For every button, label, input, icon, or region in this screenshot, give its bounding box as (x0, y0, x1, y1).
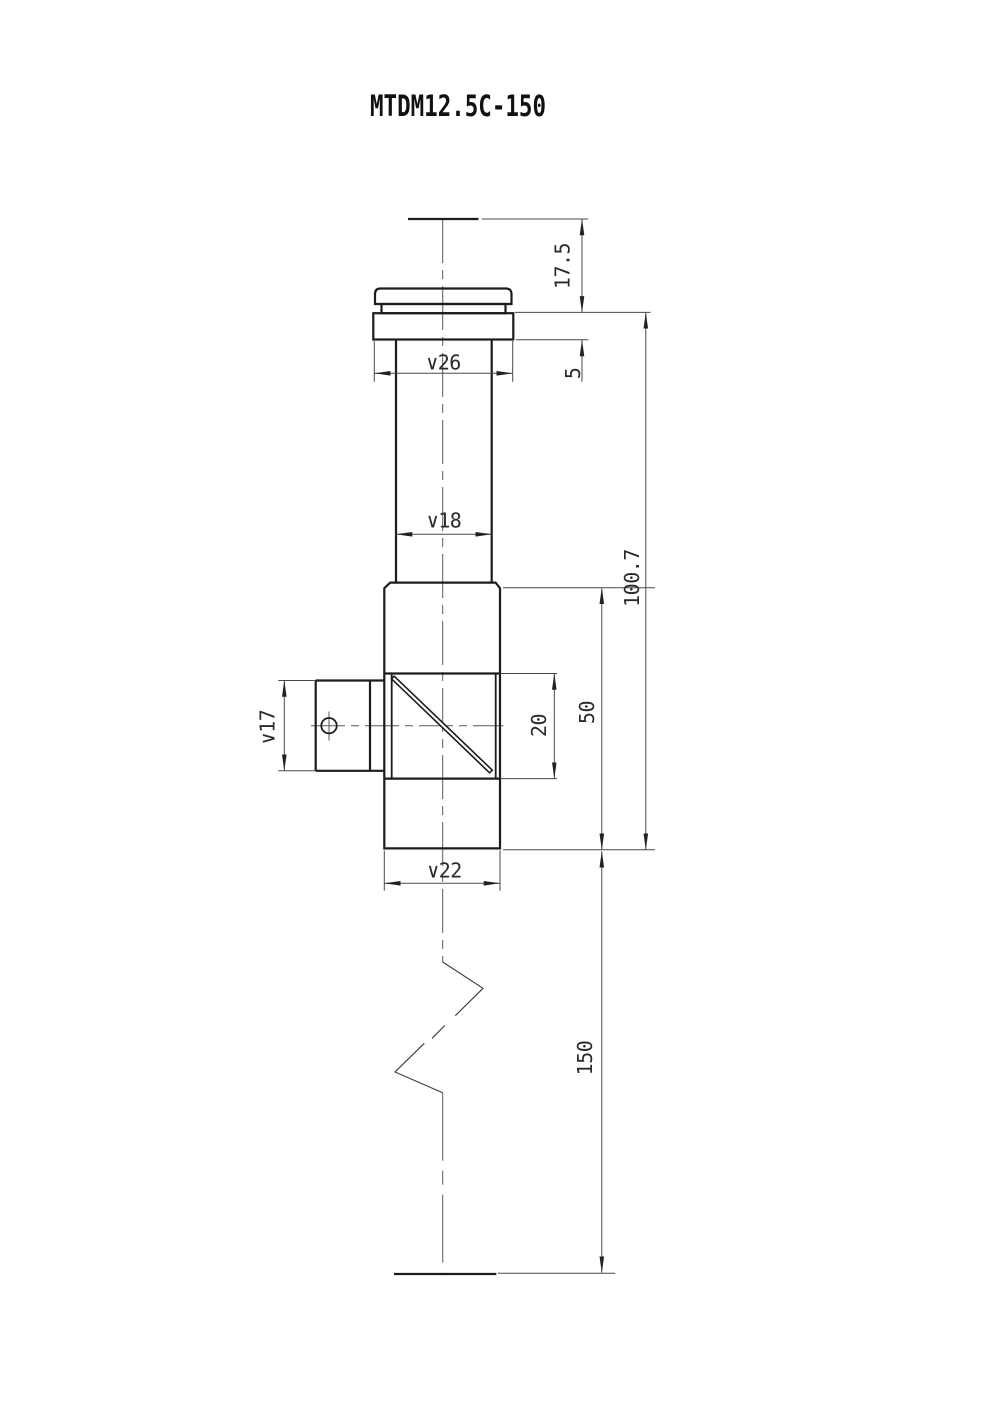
dim-label-port-dia: ∨17 (256, 710, 280, 745)
dim-label-flange-dia: ∨26 (426, 351, 461, 375)
technical-drawing: MTDM12.5C-150 ∨26 ∨18 ∨22 17.5 5 100.7 5… (0, 0, 992, 1403)
centerline-side-port (311, 712, 504, 741)
dim-label-window-length: 20 (527, 714, 551, 737)
dim-label-eye-relief: 17.5 (551, 243, 575, 289)
dim-label-body-length: 50 (575, 701, 599, 724)
dim-label-insertion-length: 150 (573, 1041, 597, 1076)
locking-ring (382, 304, 506, 313)
mirror-plate (392, 676, 493, 773)
dim-label-overall-body-length: 100.7 (620, 549, 644, 607)
drawing-title: MTDM12.5C-150 (370, 89, 546, 123)
dim-label-body-dia: ∨22 (427, 859, 462, 883)
dim-label-flange-height: 5 (561, 368, 585, 380)
eyepiece-tube (396, 340, 492, 583)
dim-insertion-length (498, 851, 615, 1273)
dim-port-dia (278, 681, 315, 771)
eyecup-cap (375, 289, 512, 305)
drawing-page: MTDM12.5C-150 ∨26 ∨18 ∨22 17.5 5 100.7 5… (0, 0, 992, 1403)
mounting-flange (373, 313, 513, 339)
main-body (384, 583, 500, 849)
break-symbol (395, 962, 483, 1093)
dim-label-tube-dia: ∨18 (427, 509, 462, 533)
